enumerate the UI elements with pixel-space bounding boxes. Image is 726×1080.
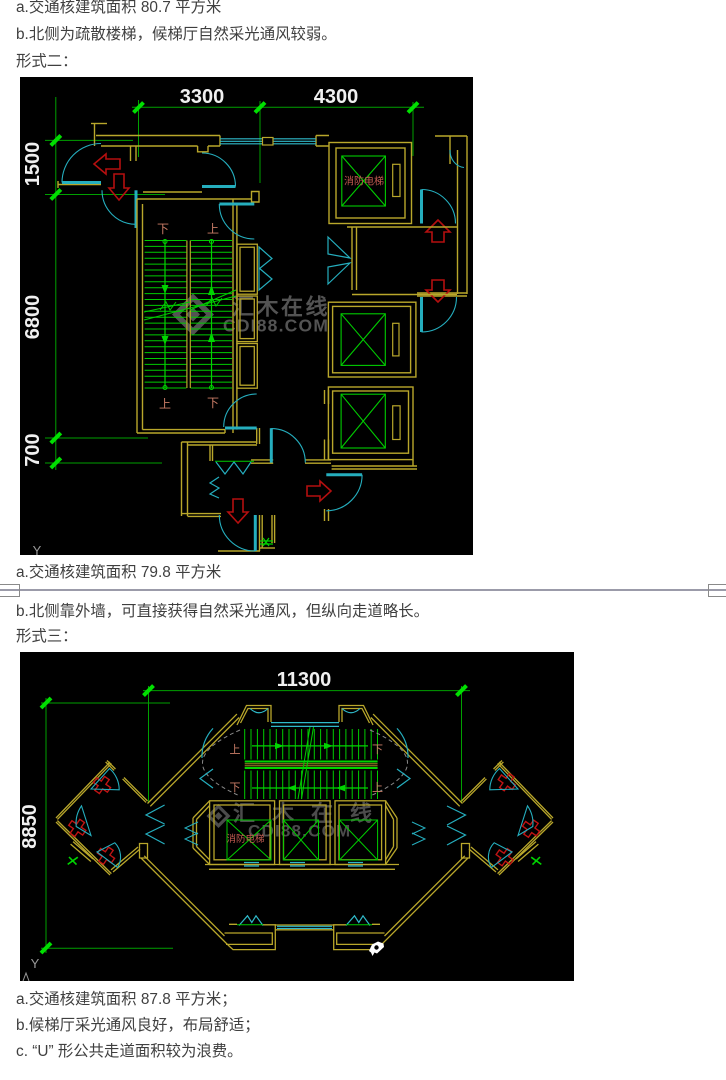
svg-text:上: 上	[372, 781, 383, 794]
svg-text:700: 700	[22, 433, 44, 466]
svg-text:下: 下	[157, 222, 169, 236]
svg-text:上: 上	[230, 743, 241, 756]
svg-text:消防电梯: 消防电梯	[226, 833, 265, 845]
svg-text:CDI88.COM: CDI88.COM	[223, 316, 329, 336]
svg-text:11300: 11300	[277, 669, 332, 691]
svg-text:上: 上	[159, 397, 171, 411]
svg-text:上: 上	[207, 222, 219, 236]
svg-text:3300: 3300	[180, 86, 225, 108]
svg-text:8850: 8850	[20, 804, 41, 849]
svg-text:下: 下	[230, 782, 241, 794]
svg-text:Y: Y	[31, 956, 40, 971]
svg-text:下: 下	[372, 744, 383, 756]
svg-text:下: 下	[207, 396, 219, 410]
svg-text:Y: Y	[33, 543, 42, 555]
svg-text:6800: 6800	[22, 295, 44, 340]
svg-text:4300: 4300	[314, 86, 359, 108]
svg-text:1500: 1500	[22, 142, 44, 187]
svg-text:消防电梯: 消防电梯	[344, 175, 384, 188]
